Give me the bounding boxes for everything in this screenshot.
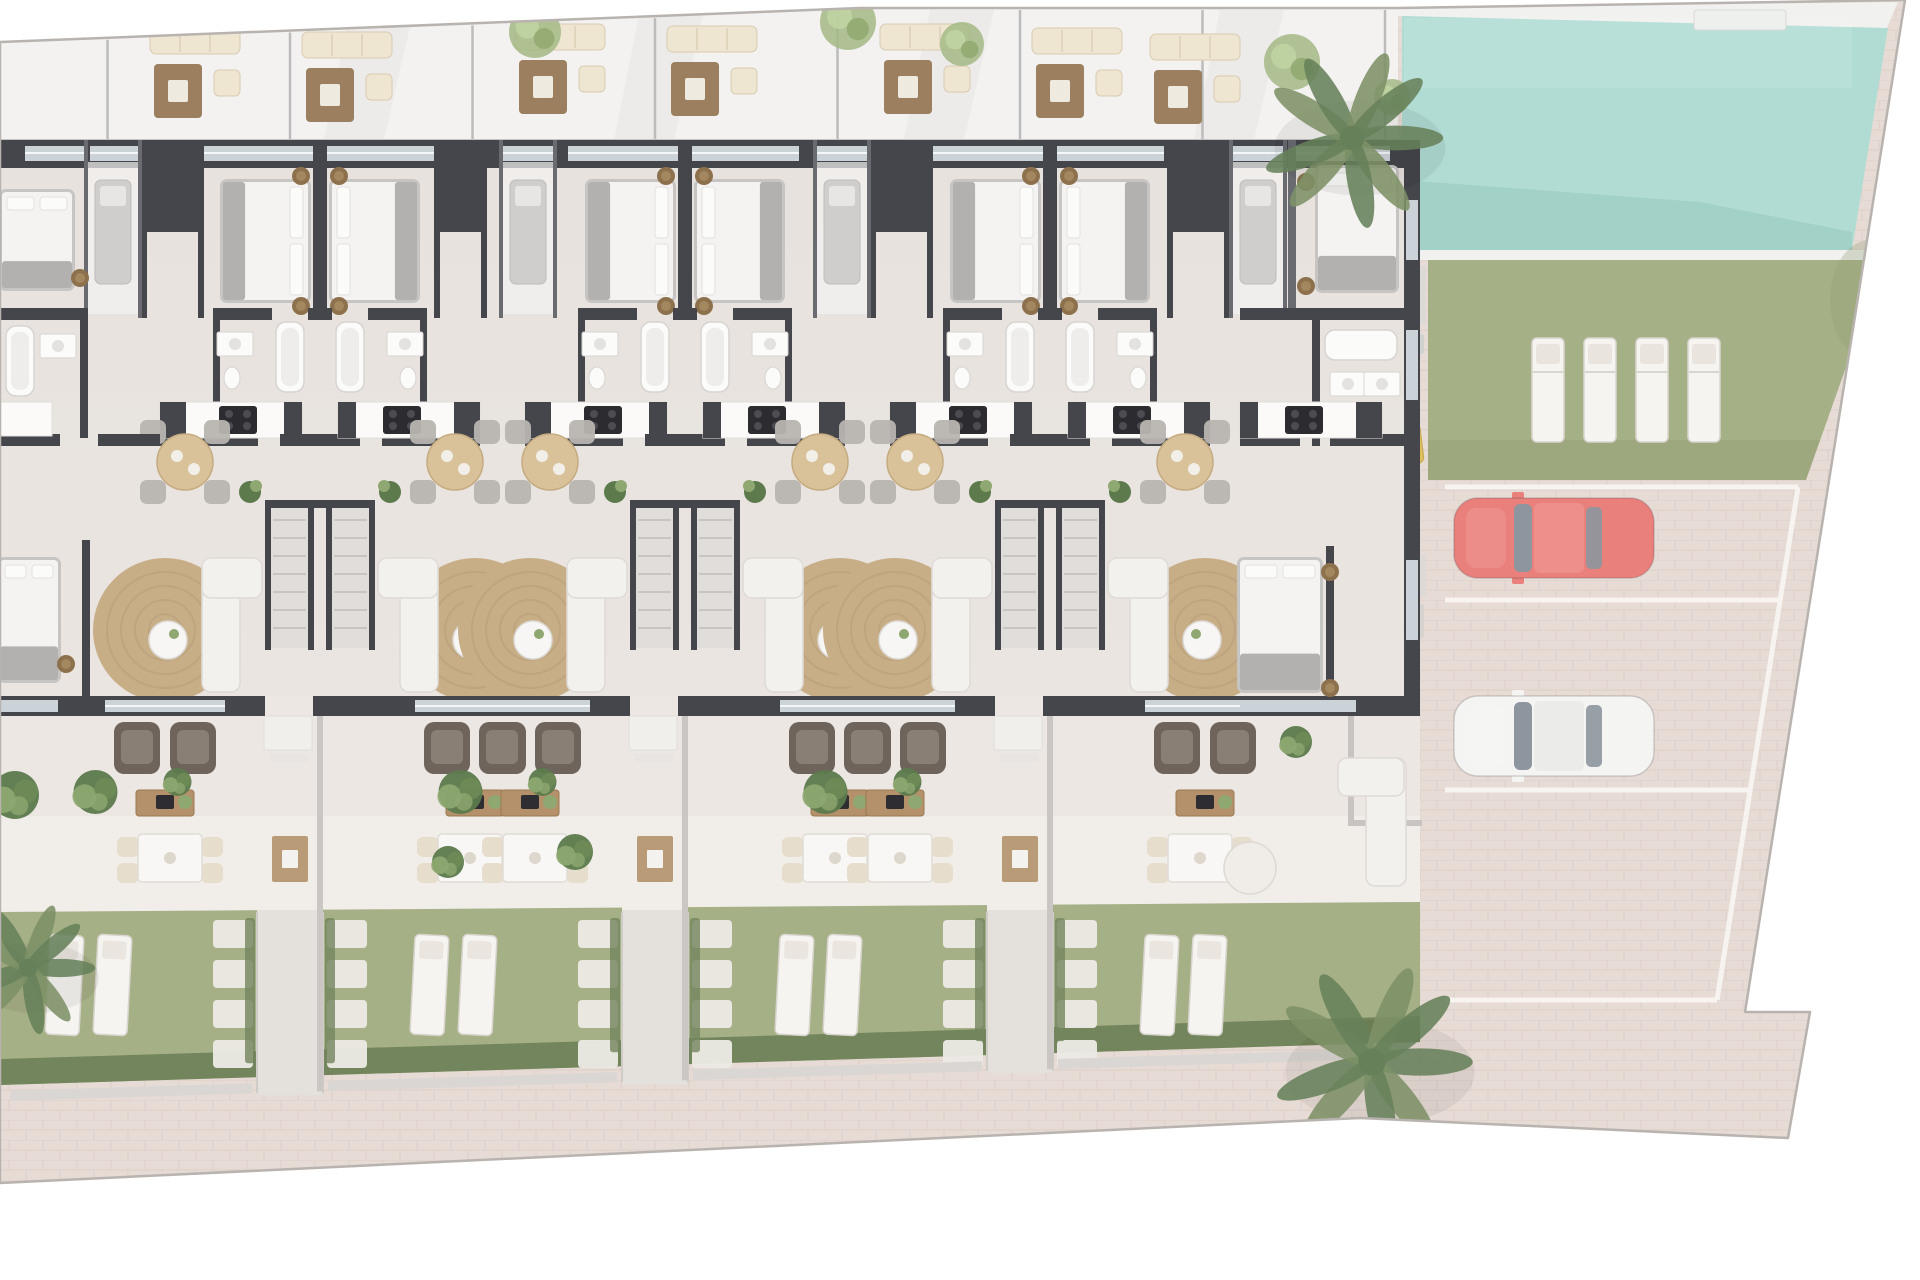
garden-lounger — [93, 934, 132, 1036]
garden-lounger — [410, 934, 449, 1036]
sun-lounger — [1688, 338, 1720, 442]
pouf-nightstand — [1321, 563, 1339, 581]
garden-lounger — [1188, 934, 1227, 1036]
pouf-nightstand — [1060, 297, 1078, 315]
bathtub — [6, 326, 34, 396]
site-plan-svg: Ground-floor site plan — terraced reside… — [0, 0, 1920, 1280]
building — [0, 140, 1420, 716]
window — [90, 146, 140, 161]
window — [500, 146, 553, 161]
bathroom-sink — [387, 332, 423, 356]
balcony-daybed — [510, 180, 546, 284]
car-red — [1454, 492, 1654, 584]
media-sideboard — [866, 790, 924, 816]
double-bed — [1237, 557, 1323, 693]
window — [25, 146, 88, 161]
coffee-table — [879, 621, 917, 659]
double-bed — [0, 189, 75, 291]
double-bed — [220, 179, 311, 303]
cooktop — [1285, 406, 1323, 434]
garden-lounger — [775, 934, 814, 1036]
window — [568, 146, 678, 161]
double-bed — [1059, 179, 1150, 303]
coffee-table — [514, 621, 552, 659]
double-bed — [0, 557, 61, 683]
toilet — [224, 367, 240, 389]
coffee-table — [149, 621, 187, 659]
media-sideboard — [501, 790, 559, 816]
garden-lounger — [823, 934, 862, 1036]
kitchenette — [525, 402, 667, 438]
bathroom-sink — [40, 334, 76, 358]
toilet — [765, 367, 781, 389]
pouf-nightstand — [1297, 277, 1315, 295]
roof-tree — [940, 22, 984, 66]
window — [933, 146, 1043, 161]
pouf-nightstand — [292, 167, 310, 185]
double-bed — [585, 179, 676, 303]
bottom-wall — [0, 696, 1420, 716]
coffee-table — [1183, 621, 1221, 659]
window — [203, 146, 313, 161]
media-sideboard — [136, 790, 194, 816]
bathroom-sink — [947, 332, 983, 356]
pouf-nightstand — [1060, 167, 1078, 185]
car-white — [1454, 690, 1654, 782]
kitchenette — [160, 402, 302, 438]
bathroom-sink — [752, 332, 788, 356]
floor-plan-canvas: Ground-floor site plan — terraced reside… — [0, 0, 1920, 1280]
window — [692, 146, 799, 161]
terrace-furniture — [136, 790, 194, 816]
toilet — [400, 367, 416, 389]
terrace-furniture — [866, 790, 924, 816]
terrace-furniture — [1176, 790, 1234, 816]
bathtub — [336, 322, 364, 392]
pouf-nightstand — [71, 269, 89, 287]
pouf-nightstand — [657, 297, 675, 315]
kitchenette — [1240, 402, 1382, 438]
pool-step — [1694, 10, 1786, 30]
media-sideboard — [1176, 790, 1234, 816]
toilet — [1130, 367, 1146, 389]
pouf-nightstand — [330, 167, 348, 185]
toilet — [589, 367, 605, 389]
pouf-nightstand — [695, 297, 713, 315]
pool-area — [1398, 2, 1898, 260]
double-bed — [950, 179, 1041, 303]
double-bed — [694, 179, 785, 303]
sun-lounger — [1584, 338, 1616, 442]
sun-lounger — [1532, 338, 1564, 442]
pouf-nightstand — [330, 297, 348, 315]
window — [1057, 146, 1164, 161]
pouf-nightstand — [292, 297, 310, 315]
pouf-nightstand — [657, 167, 675, 185]
balcony-daybed — [95, 180, 131, 284]
bathtub — [1066, 322, 1094, 392]
bathtub — [701, 322, 729, 392]
balcony-daybed — [824, 180, 860, 284]
pouf-nightstand — [695, 167, 713, 185]
bathroom-sink — [1117, 332, 1153, 356]
balcony-daybed — [1240, 180, 1276, 284]
garden-lounger — [1140, 934, 1179, 1036]
terrace-furniture — [501, 790, 559, 816]
pouf-nightstand — [1022, 297, 1040, 315]
toilet — [954, 367, 970, 389]
bathroom-sink — [582, 332, 618, 356]
bathtub — [641, 322, 669, 392]
kitchenette — [338, 402, 480, 438]
bathtub — [276, 322, 304, 392]
kitchenette — [890, 402, 1032, 438]
bathroom-sink — [217, 332, 253, 356]
pool-deck-edge — [1398, 250, 1886, 260]
garden-lounger — [458, 934, 497, 1036]
bathtub — [1006, 322, 1034, 392]
swimming-pool — [1402, 16, 1888, 250]
double-bed — [329, 179, 420, 303]
pouf-nightstand — [1022, 167, 1040, 185]
window — [327, 146, 434, 161]
pouf-nightstand — [57, 655, 75, 673]
kitchenette — [1068, 402, 1210, 438]
sun-lounger — [1636, 338, 1668, 442]
window — [815, 146, 868, 161]
pouf-nightstand — [1321, 679, 1339, 697]
kitchenette — [703, 402, 845, 438]
bathroom-sink — [1364, 372, 1400, 396]
bathroom-sink — [1330, 372, 1366, 396]
